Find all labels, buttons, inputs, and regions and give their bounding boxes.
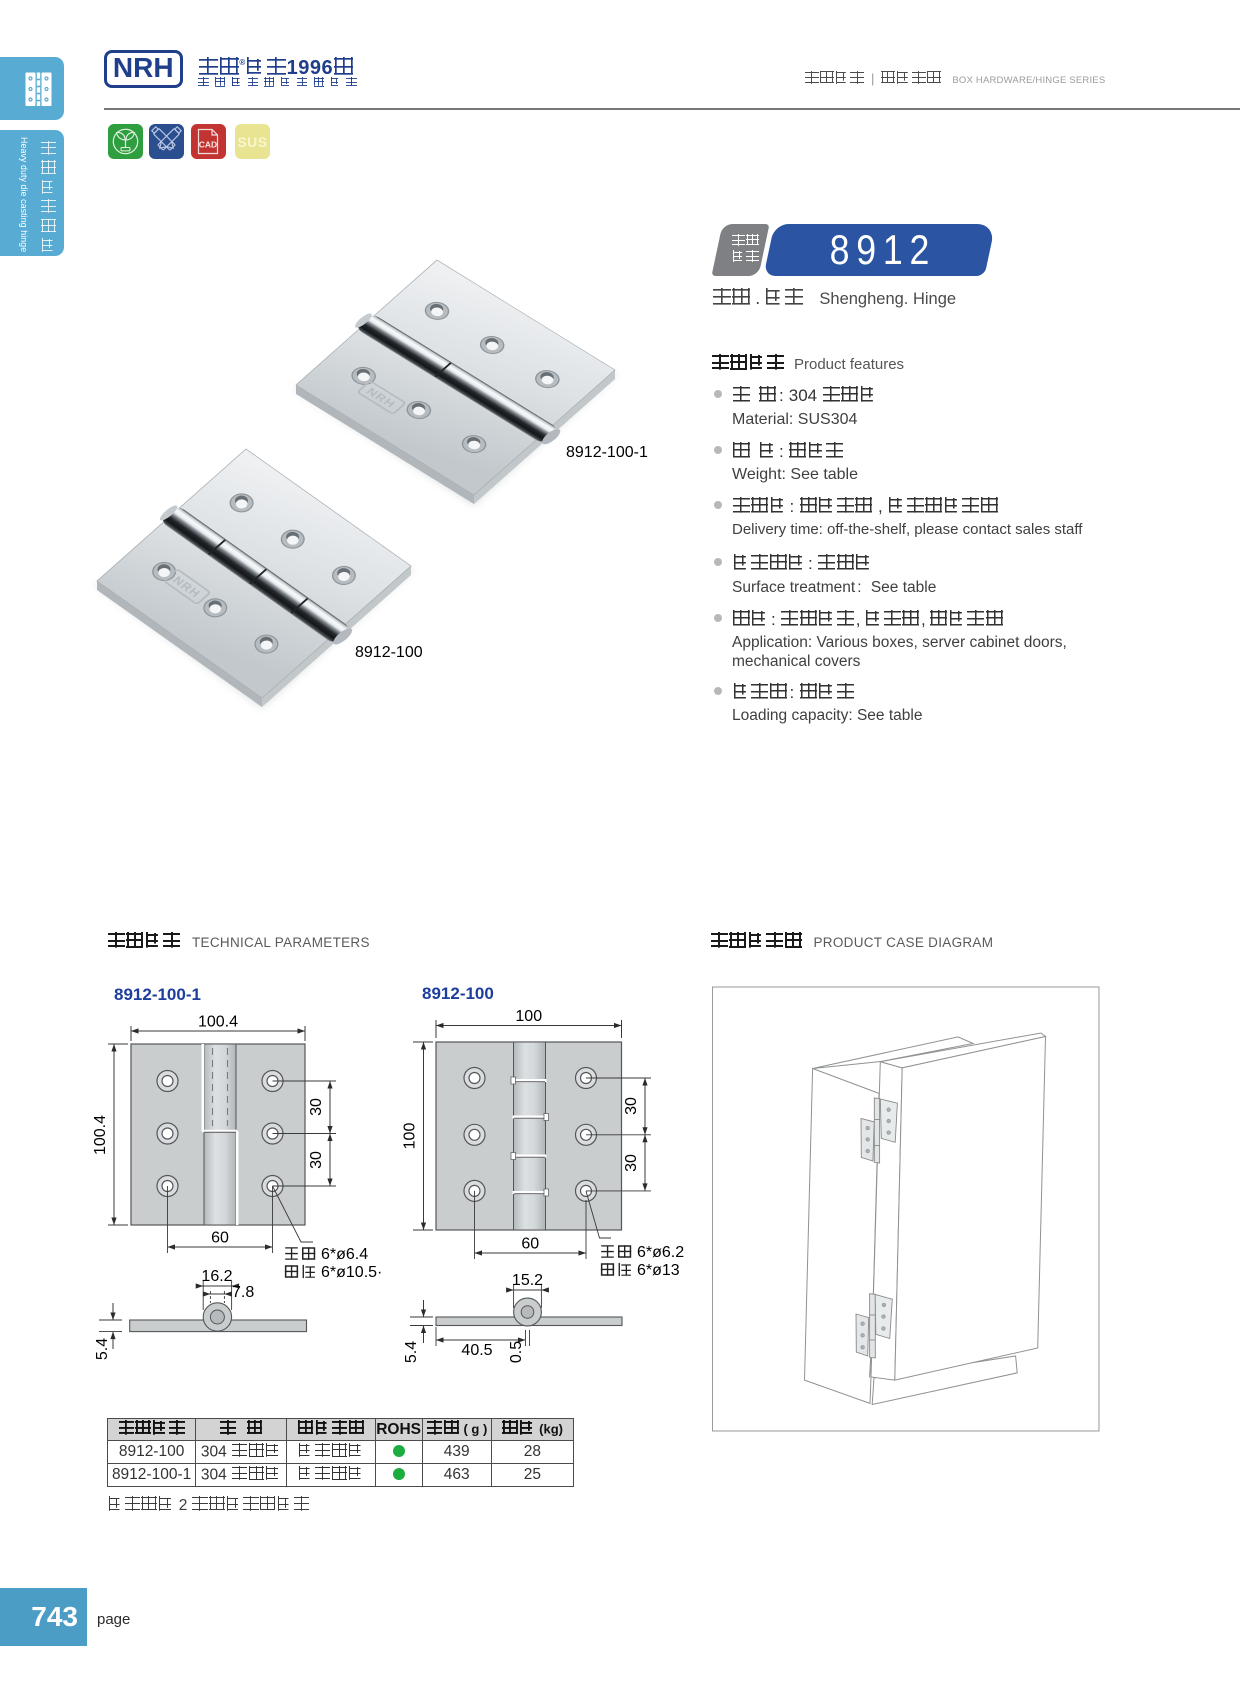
svg-text:16.2: 16.2 bbox=[201, 1268, 232, 1285]
svg-text:100.4: 100.4 bbox=[198, 1014, 238, 1031]
svg-text:CAD: CAD bbox=[199, 140, 217, 150]
svg-text:6*ø6.4: 6*ø6.4 bbox=[321, 1246, 368, 1263]
svg-text:100.4: 100.4 bbox=[92, 1115, 109, 1155]
svg-text:8912-100: 8912-100 bbox=[355, 644, 423, 661]
svg-text:6*ø13: 6*ø13 bbox=[637, 1262, 680, 1279]
svg-text:8912-100-1: 8912-100-1 bbox=[566, 444, 648, 461]
svg-text:5.4: 5.4 bbox=[403, 1341, 420, 1363]
svg-text:15.2: 15.2 bbox=[512, 1272, 543, 1289]
svg-text:30: 30 bbox=[308, 1151, 325, 1169]
svg-text:0.5: 0.5 bbox=[508, 1341, 525, 1363]
svg-text:30: 30 bbox=[623, 1097, 640, 1115]
svg-text:30: 30 bbox=[623, 1154, 640, 1172]
svg-text:SUS: SUS bbox=[237, 134, 267, 150]
svg-text:30: 30 bbox=[308, 1098, 325, 1116]
svg-text:6*ø6.2: 6*ø6.2 bbox=[637, 1244, 684, 1261]
svg-text:60: 60 bbox=[521, 1236, 539, 1253]
svg-text:6*ø10.5·: 6*ø10.5· bbox=[321, 1264, 382, 1281]
svg-text:7.8: 7.8 bbox=[232, 1284, 254, 1301]
svg-text:40.5: 40.5 bbox=[461, 1342, 492, 1359]
svg-text:100: 100 bbox=[402, 1123, 419, 1150]
svg-text:60: 60 bbox=[211, 1230, 229, 1247]
svg-text:5.4: 5.4 bbox=[94, 1338, 111, 1360]
svg-text:100: 100 bbox=[515, 1008, 542, 1025]
